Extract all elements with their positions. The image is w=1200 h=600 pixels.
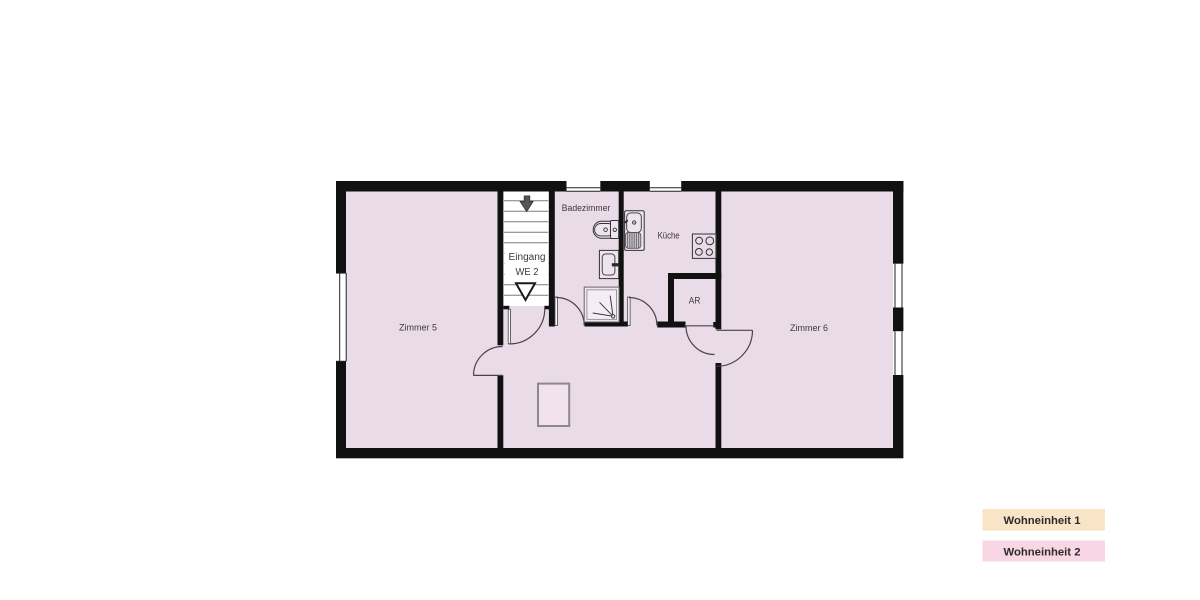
svg-text:Zimmer 5: Zimmer 5 [399,323,437,333]
svg-text:AR: AR [689,295,701,305]
svg-text:WE 2: WE 2 [516,267,539,278]
svg-text:Zimmer 6: Zimmer 6 [790,323,828,333]
svg-text:Badezimmer: Badezimmer [562,203,611,213]
svg-text:Eingang: Eingang [509,252,546,263]
svg-text:Küche: Küche [658,231,680,241]
svg-text:Wohneinheit 1: Wohneinheit 1 [1004,515,1081,527]
svg-text:Wohneinheit 2: Wohneinheit 2 [1004,546,1081,558]
